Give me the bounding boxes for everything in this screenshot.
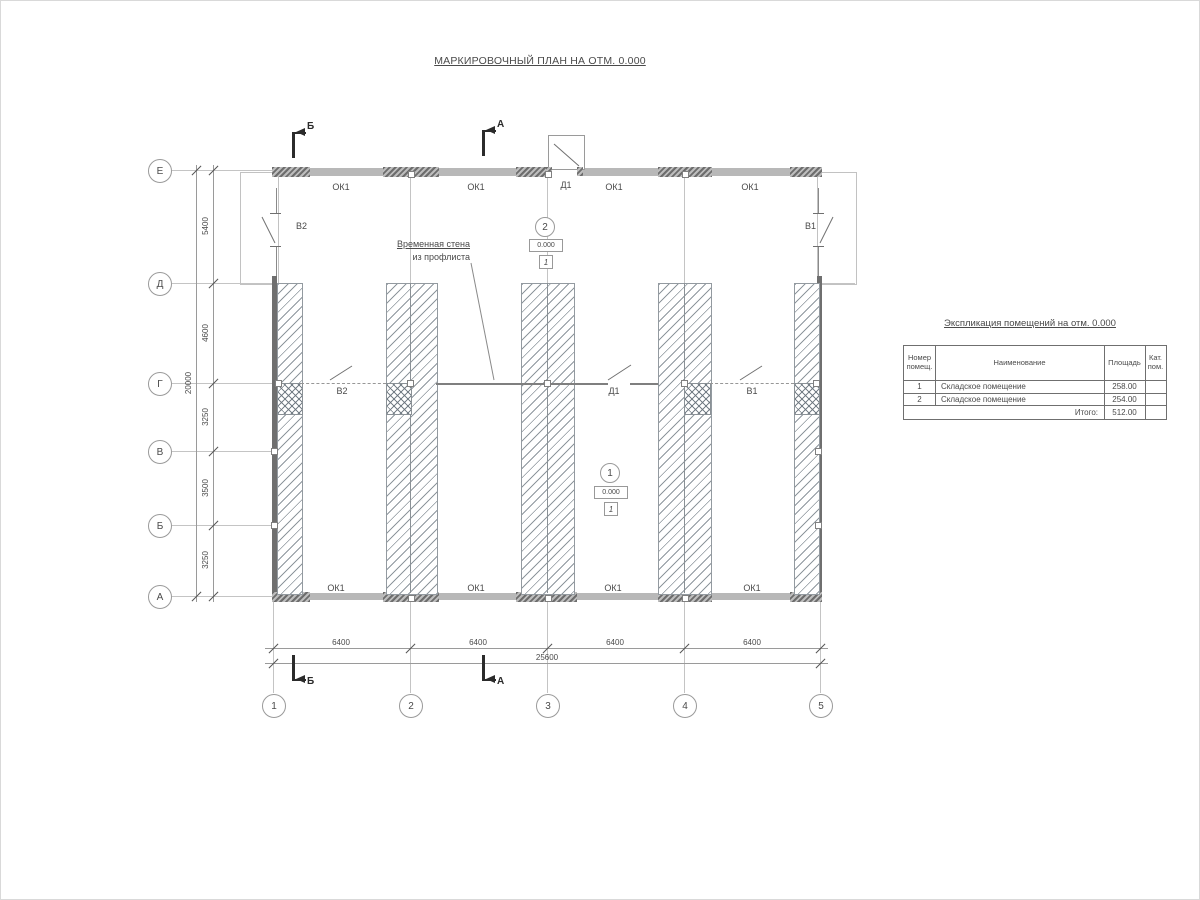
- axis-bubble-2: 2: [399, 694, 423, 718]
- axis-bubble-3: 3: [536, 694, 560, 718]
- axis-bubble-v: В: [148, 440, 172, 464]
- temp-wall-solid: [630, 383, 658, 385]
- annotation-line2: из профлиста: [383, 251, 470, 264]
- axis-label-v: В: [157, 447, 164, 458]
- section-mark-a-top: [482, 130, 485, 156]
- room-floor-badge: 1: [539, 255, 553, 269]
- annotation-leader-line: [471, 263, 494, 380]
- pylon-core: [277, 383, 303, 415]
- wall-node: [275, 380, 282, 387]
- room-number: 2: [542, 222, 548, 233]
- wall-node: [545, 595, 552, 602]
- room-marker-1: 1: [600, 463, 620, 483]
- pylon-divider: [410, 283, 411, 593]
- axis-label-3: 3: [545, 701, 551, 712]
- door-label: Д1: [552, 180, 580, 190]
- axis-label-4: 4: [682, 701, 688, 712]
- section-mark-b-top: [292, 132, 295, 158]
- window-label: ОК1: [462, 182, 490, 192]
- gate-jamb-cap: [813, 213, 824, 214]
- axis-line-b: [172, 525, 272, 526]
- door-label-d1-wall: Д1: [600, 386, 628, 396]
- col-header-cat: Кат. пом.: [1145, 346, 1166, 380]
- axis-bubble-5: 5: [809, 694, 833, 718]
- section-label-a-top: А: [497, 119, 504, 130]
- annotation-line1: Временная стена: [383, 238, 470, 251]
- axis-bubble-1: 1: [262, 694, 286, 718]
- pylon-core: [684, 383, 711, 415]
- drawing-title: МАРКИРОВОЧНЫЙ ПЛАН НА ОТМ. 0.000: [400, 55, 680, 67]
- window-label: ОК1: [327, 182, 355, 192]
- wall-segment: [516, 167, 548, 177]
- axis-label-2: 2: [408, 701, 414, 712]
- axis-label-d: Д: [157, 279, 164, 290]
- gate-jamb-cap: [813, 246, 824, 247]
- section-arrowhead-icon: [486, 126, 495, 134]
- pylon-divider: [547, 283, 548, 593]
- wall-node: [408, 595, 415, 602]
- wall-node: [408, 171, 415, 178]
- temp-wall-dashed: [301, 383, 386, 384]
- gate-jamb-cap: [270, 213, 281, 214]
- room-floor-badge: 1: [604, 502, 618, 516]
- axis-label-g: Г: [157, 379, 162, 390]
- gate-leaf-v2-wall: [330, 366, 352, 380]
- section-mark-a-bottom: [482, 655, 485, 681]
- axis-line-a: [172, 596, 272, 597]
- wall-segment: [790, 167, 822, 177]
- cell-name: Складское помещение: [941, 393, 1101, 405]
- room-level-badge: 0.000: [594, 486, 628, 499]
- gate-leaf-v1-wall: [740, 366, 762, 380]
- gate-apron-right: [817, 172, 857, 285]
- gate-apron-left: [240, 172, 279, 285]
- leaf-overlay: [0, 0, 1200, 900]
- wall-node: [682, 595, 689, 602]
- axis-bubble-b: Б: [148, 514, 172, 538]
- dim-value: 4600: [201, 313, 211, 353]
- section-label-b-bottom: Б: [307, 676, 314, 687]
- pylon-3: [521, 283, 575, 595]
- schedule-title: Экспликация помещений на отм. 0.000: [930, 318, 1130, 329]
- wall-node: [544, 380, 551, 387]
- room-level-badge: 0.000: [529, 239, 563, 252]
- temp-wall-solid: [436, 383, 608, 385]
- gate-label-v1-wall: В1: [738, 386, 766, 396]
- wall-segment: [272, 167, 310, 177]
- cell-area: 254.00: [1104, 393, 1145, 405]
- col-header-name: Наименование: [935, 346, 1104, 380]
- dim-value: 5400: [201, 206, 211, 246]
- section-label-a-bottom: А: [497, 676, 504, 687]
- wall-node: [815, 522, 822, 529]
- axis-label-b: Б: [157, 521, 164, 532]
- gate-label-v2: В2: [296, 221, 320, 231]
- gate-jamb: [276, 188, 277, 214]
- axis-bubble-g: Г: [148, 372, 172, 396]
- cell-num: 2: [904, 393, 935, 405]
- gate-label-v2-wall: В2: [328, 386, 356, 396]
- dim-value: 3500: [201, 468, 211, 508]
- window-label: ОК1: [738, 583, 766, 593]
- cell-total-label: Итого:: [904, 405, 1098, 419]
- axis-label-1: 1: [271, 701, 277, 712]
- wall-node: [682, 171, 689, 178]
- dim-value: 6400: [448, 638, 508, 647]
- wall-node: [681, 380, 688, 387]
- dim-line-bottom-outer: [265, 663, 828, 664]
- gate-jamb: [818, 188, 819, 214]
- wall-node: [813, 380, 820, 387]
- axis-bubble-4: 4: [673, 694, 697, 718]
- section-mark-b-bottom: [292, 655, 295, 681]
- axis-label-a: А: [157, 592, 164, 603]
- schedule-table: Номер помещ. Наименование Площадь Кат. п…: [903, 345, 1167, 420]
- room-number: 1: [607, 468, 613, 479]
- axis-line-e: [172, 170, 272, 171]
- gate-label-v1: В1: [794, 221, 816, 231]
- temp-wall-dashed: [710, 383, 794, 384]
- section-arrowhead-icon: [486, 675, 495, 683]
- axis-bubble-a: А: [148, 585, 172, 609]
- dim-value: 6400: [585, 638, 645, 647]
- pylon-5: [794, 283, 820, 595]
- section-arrowhead-icon: [296, 675, 305, 683]
- pylon-divider: [684, 283, 685, 593]
- window-label: ОК1: [736, 182, 764, 192]
- section-arrowhead-icon: [296, 128, 305, 136]
- window-label: ОК1: [462, 583, 490, 593]
- cell-total-value: 512.00: [1104, 405, 1145, 419]
- dim-value: 6400: [311, 638, 371, 647]
- pylon-4: [658, 283, 712, 595]
- cell-num: 1: [904, 380, 935, 393]
- window-label: ОК1: [599, 583, 627, 593]
- door-leaf-d1-wall: [608, 365, 631, 380]
- wall-node: [815, 448, 822, 455]
- axis-bubble-e: Е: [148, 159, 172, 183]
- wall-node: [407, 380, 414, 387]
- dim-value: 3250: [201, 540, 211, 580]
- gate-jamb: [276, 246, 277, 276]
- pylon-core: [386, 383, 412, 415]
- window-label: ОК1: [322, 583, 350, 593]
- cell-name: Складское помещение: [941, 380, 1101, 393]
- axis-line-v: [172, 451, 272, 452]
- door-jamb: [577, 167, 583, 176]
- pylon-core: [794, 383, 820, 415]
- dim-line-left-outer: [196, 165, 197, 602]
- pylon-2: [386, 283, 438, 595]
- gate-jamb: [818, 246, 819, 276]
- drawing-canvas: МАРКИРОВОЧНЫЙ ПЛАН НА ОТМ. 0.000 Е Д Г В…: [0, 0, 1200, 900]
- wall-node: [545, 171, 552, 178]
- dim-total-bottom: 25600: [517, 653, 577, 662]
- col-header-area: Площадь: [1104, 346, 1145, 380]
- pylon-1: [277, 283, 303, 595]
- dim-value: 6400: [722, 638, 782, 647]
- axis-label-e: Е: [157, 166, 164, 177]
- section-label-b-top: Б: [307, 121, 314, 132]
- wall-node: [271, 522, 278, 529]
- room-marker-2: 2: [535, 217, 555, 237]
- door-vestibule: [548, 135, 585, 170]
- col-header-num: Номер помещ.: [904, 346, 935, 380]
- axis-label-5: 5: [818, 701, 824, 712]
- dim-value: 3250: [201, 397, 211, 437]
- window-label: ОК1: [600, 182, 628, 192]
- axis-bubble-d: Д: [148, 272, 172, 296]
- annotation-temp-wall: Временная стена из профлиста: [383, 238, 470, 264]
- cell-area: 258.00: [1104, 380, 1145, 393]
- dim-total-left: 20000: [184, 363, 194, 403]
- gate-jamb-cap: [270, 246, 281, 247]
- wall-node: [271, 448, 278, 455]
